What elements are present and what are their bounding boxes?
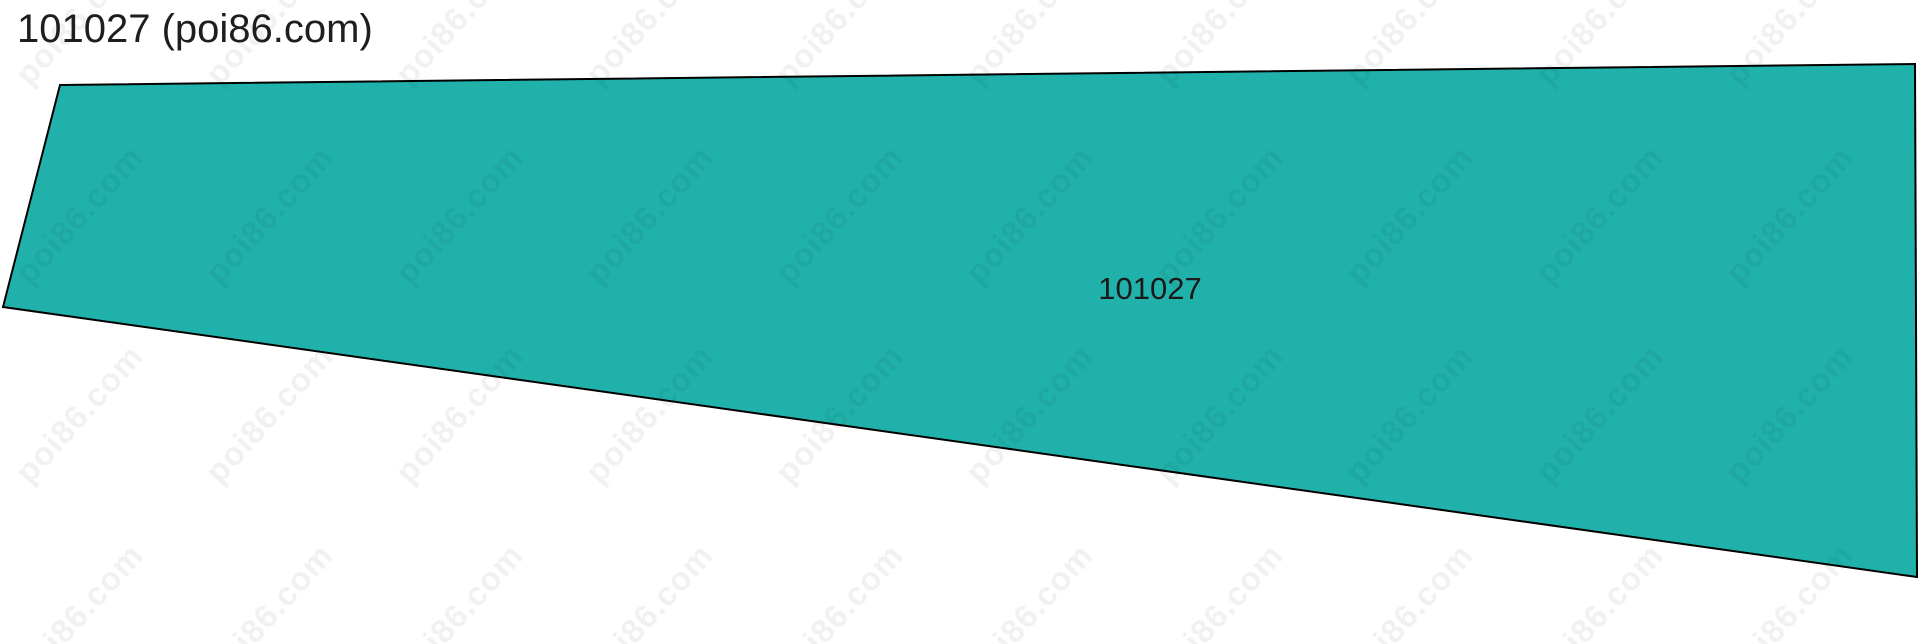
- region-label: 101027: [1098, 271, 1201, 307]
- page-title: 101027 (poi86.com): [17, 6, 373, 52]
- region-polygon: [3, 64, 1917, 577]
- boundary-svg: [0, 0, 1920, 644]
- map-canvas: poi86.compoi86.compoi86.compoi86.compoi8…: [0, 0, 1920, 644]
